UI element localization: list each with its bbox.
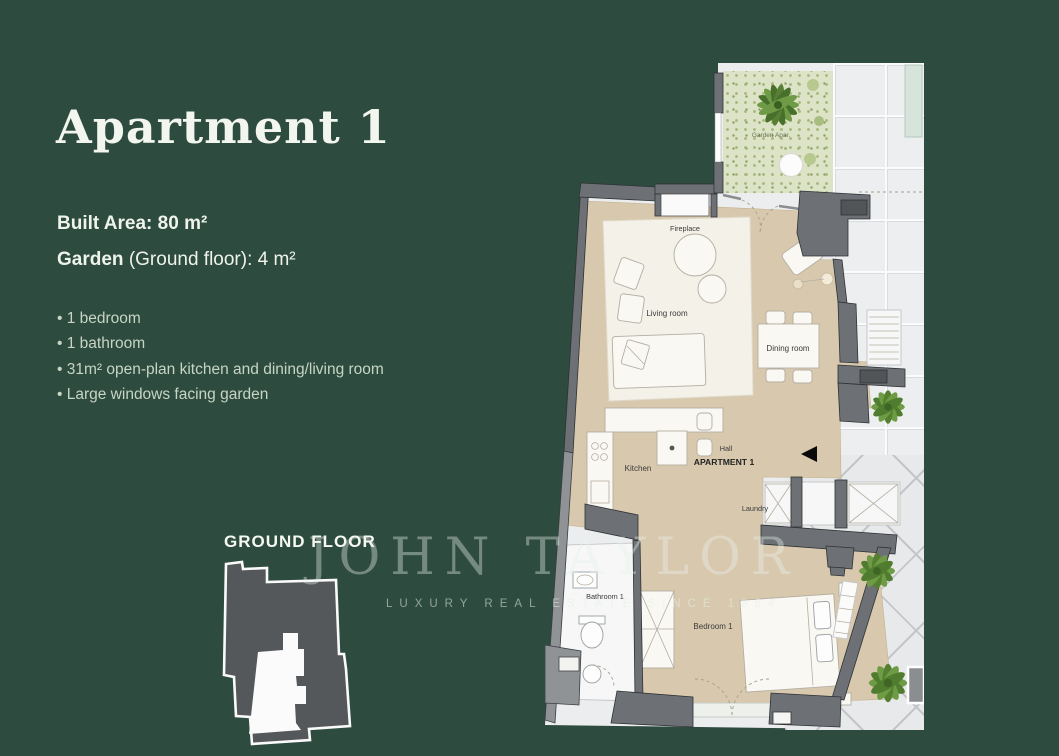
built-area-value: 80 m² (158, 213, 208, 234)
label-laundry: Laundry (742, 504, 769, 513)
floorplan-drawing: Garden Apar. Fireplace Living room Dinin… (545, 63, 924, 730)
closet-strip (763, 482, 900, 525)
label-kitchen: Kitchen (625, 464, 652, 473)
dining-wall-step (838, 302, 858, 363)
wall-segment (838, 383, 869, 423)
listing-page: Apartment 1 Built Area: 80 m² Garden (Gr… (0, 0, 1059, 756)
label-dining-room: Dining room (766, 344, 809, 353)
label-living-room: Living room (646, 309, 688, 318)
dining-chair (766, 311, 785, 324)
coffee-table (674, 234, 716, 276)
label-bedroom: Bedroom 1 (693, 622, 733, 631)
stool (793, 279, 803, 289)
label-garden: Garden Apar. (752, 132, 790, 139)
dining-chair (793, 312, 812, 325)
bottom-wall-left (611, 691, 693, 727)
fireplace-wall (655, 184, 717, 194)
neighbor-structure (908, 667, 924, 703)
faucet (670, 446, 675, 451)
fireplace-niche (661, 194, 709, 216)
fireplace-jamb (711, 194, 717, 217)
mid-wall-step (826, 546, 854, 569)
feature-item: Large windows facing garden (57, 382, 384, 407)
top-wall (579, 183, 657, 201)
outer-wall-bump (545, 645, 581, 705)
feature-list: 1 bedroom 1 bathroom 31m² open-plan kitc… (57, 306, 384, 408)
shower-drain (583, 665, 601, 683)
garden-shrub (807, 79, 819, 91)
terrace-plant (871, 390, 905, 424)
page-title: Apartment 1 (56, 100, 391, 154)
wall-notch (773, 712, 791, 724)
garden-shrub (814, 116, 824, 126)
garden-line: Garden (Ground floor): 4 m² (57, 249, 296, 271)
feature-item: 1 bedroom (57, 306, 384, 331)
dining-chair (766, 369, 785, 382)
feature-item: 31m² open-plan kitchen and dining/living… (57, 357, 384, 382)
mid-wall-step-small (830, 567, 845, 576)
entry-column (841, 200, 867, 215)
garden-wall (714, 162, 723, 193)
toilet (581, 622, 603, 648)
pillow (813, 601, 831, 629)
stairs (867, 310, 901, 365)
label-apartment: APARTMENT 1 (694, 457, 755, 467)
fireplace-jamb (655, 194, 661, 216)
glass-canopy (905, 65, 922, 137)
built-area-line: Built Area: 80 m² (57, 213, 207, 235)
feature-item: 1 bathroom (57, 331, 384, 356)
sofa-cushion (617, 293, 645, 323)
garden-value: (Ground floor): 4 m² (129, 249, 296, 270)
built-area-label: Built Area: (57, 213, 152, 234)
wall-column (860, 370, 887, 383)
label-hall: Hall (720, 444, 733, 453)
label-fireplace: Fireplace (670, 224, 700, 233)
side-table (698, 275, 726, 303)
garden-ornament (780, 154, 803, 177)
dining-chair (793, 370, 812, 383)
garden-shrub (804, 153, 816, 165)
garden-tree (757, 83, 799, 126)
hall-post (835, 480, 847, 528)
bar-stool (697, 413, 712, 430)
wall-niche (559, 657, 579, 671)
watermark-brand: JOHN TAYLOR (308, 528, 799, 587)
bar-stool (697, 439, 712, 456)
pillow (816, 634, 834, 662)
hall-post (791, 477, 802, 527)
garden-window (715, 113, 721, 162)
watermark-tagline: LUXURY REAL ESTATE SINCE 1864 (386, 598, 781, 610)
floorplan: Garden Apar. Fireplace Living room Dinin… (545, 63, 924, 730)
garden-wall (714, 73, 723, 113)
garden-label: Garden (57, 249, 124, 270)
